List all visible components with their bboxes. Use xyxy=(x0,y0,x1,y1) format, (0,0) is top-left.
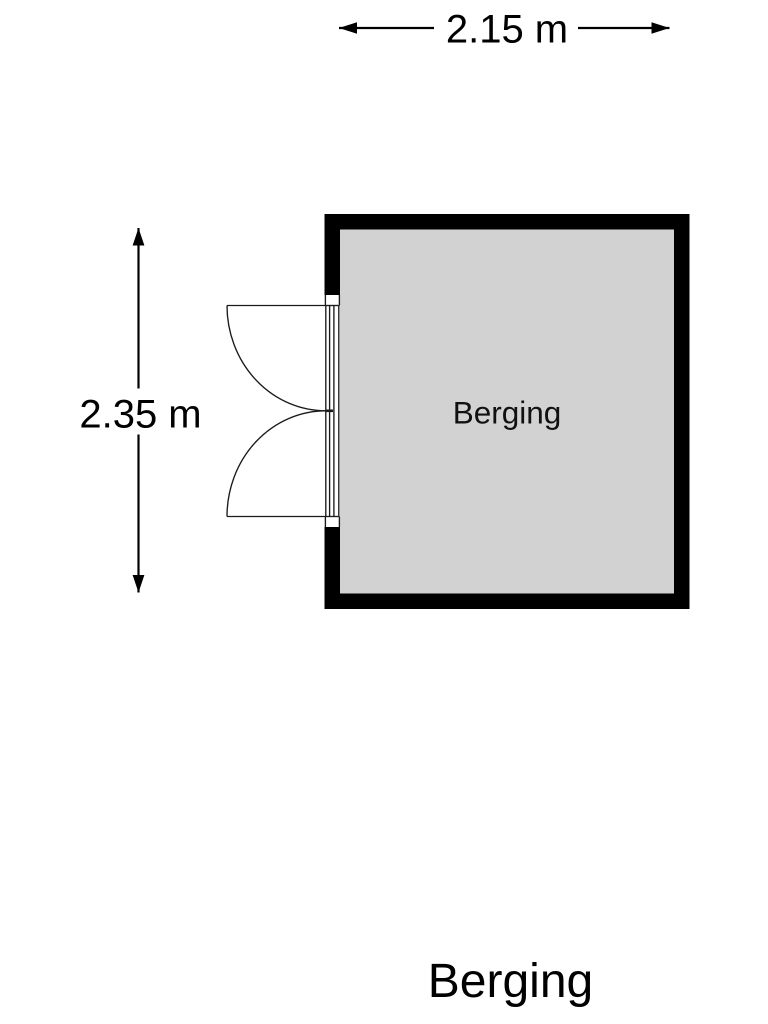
svg-text:Berging: Berging xyxy=(453,394,562,430)
svg-text:2.15 m: 2.15 m xyxy=(446,8,568,52)
svg-text:2.35 m: 2.35 m xyxy=(79,393,201,437)
svg-text:Berging: Berging xyxy=(428,955,593,1008)
